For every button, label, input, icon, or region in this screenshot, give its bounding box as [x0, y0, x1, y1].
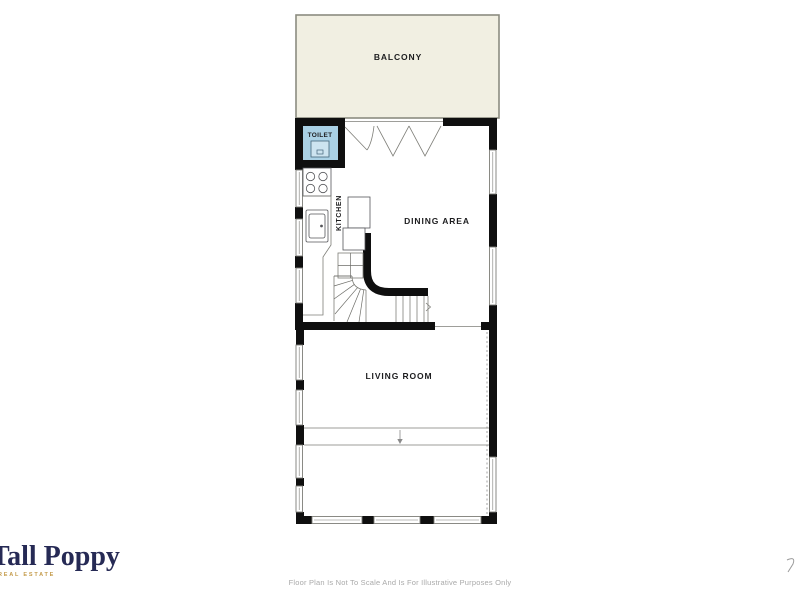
- balcony-label: BALCONY: [374, 52, 422, 62]
- window: [296, 170, 303, 207]
- kitchen-area: KITCHEN: [303, 168, 370, 315]
- floor-plan-page: BALCONY: [0, 0, 800, 600]
- window: [312, 517, 362, 524]
- window: [490, 150, 497, 194]
- toilet-fixture-icon: [311, 141, 329, 157]
- stair-wall: [367, 233, 428, 292]
- sink-icon: [306, 210, 328, 242]
- window: [490, 457, 497, 512]
- window: [374, 517, 420, 524]
- annotations: [304, 327, 794, 573]
- disclaimer-text: Floor Plan Is Not To Scale And Is For Il…: [0, 578, 800, 587]
- brand-name: Tall Poppy: [0, 543, 120, 571]
- window: [296, 486, 303, 512]
- window: [296, 268, 303, 303]
- toilet-room: TOILET: [303, 126, 338, 160]
- brand-logo: Tall Poppy REAL ESTATE: [0, 543, 120, 578]
- refrigerator-icon: [348, 197, 370, 228]
- dining-area-label: DINING AREA: [404, 216, 470, 226]
- toilet-door: [345, 126, 374, 150]
- window: [490, 247, 497, 305]
- doors: [345, 126, 441, 156]
- living-room-label: LIVING ROOM: [365, 371, 432, 381]
- balcony-double-doors: [377, 126, 441, 156]
- window: [296, 345, 303, 380]
- step-down-arrow-icon: [397, 439, 402, 444]
- window: [434, 517, 481, 524]
- balcony-floor: [296, 15, 499, 118]
- corner-mark: [787, 559, 794, 572]
- window: [296, 390, 303, 425]
- floor-plan-drawing: BALCONY: [0, 0, 800, 600]
- kitchen-label: KITCHEN: [336, 195, 343, 231]
- stove-icon: [303, 168, 331, 196]
- toilet-label: TOILET: [308, 132, 333, 139]
- window: [296, 445, 303, 478]
- balcony-room: BALCONY: [296, 15, 499, 118]
- toilet-wall-bottom: [295, 160, 345, 168]
- step-band: [304, 428, 489, 445]
- cabinet-icon: [343, 228, 365, 250]
- window: [296, 219, 303, 256]
